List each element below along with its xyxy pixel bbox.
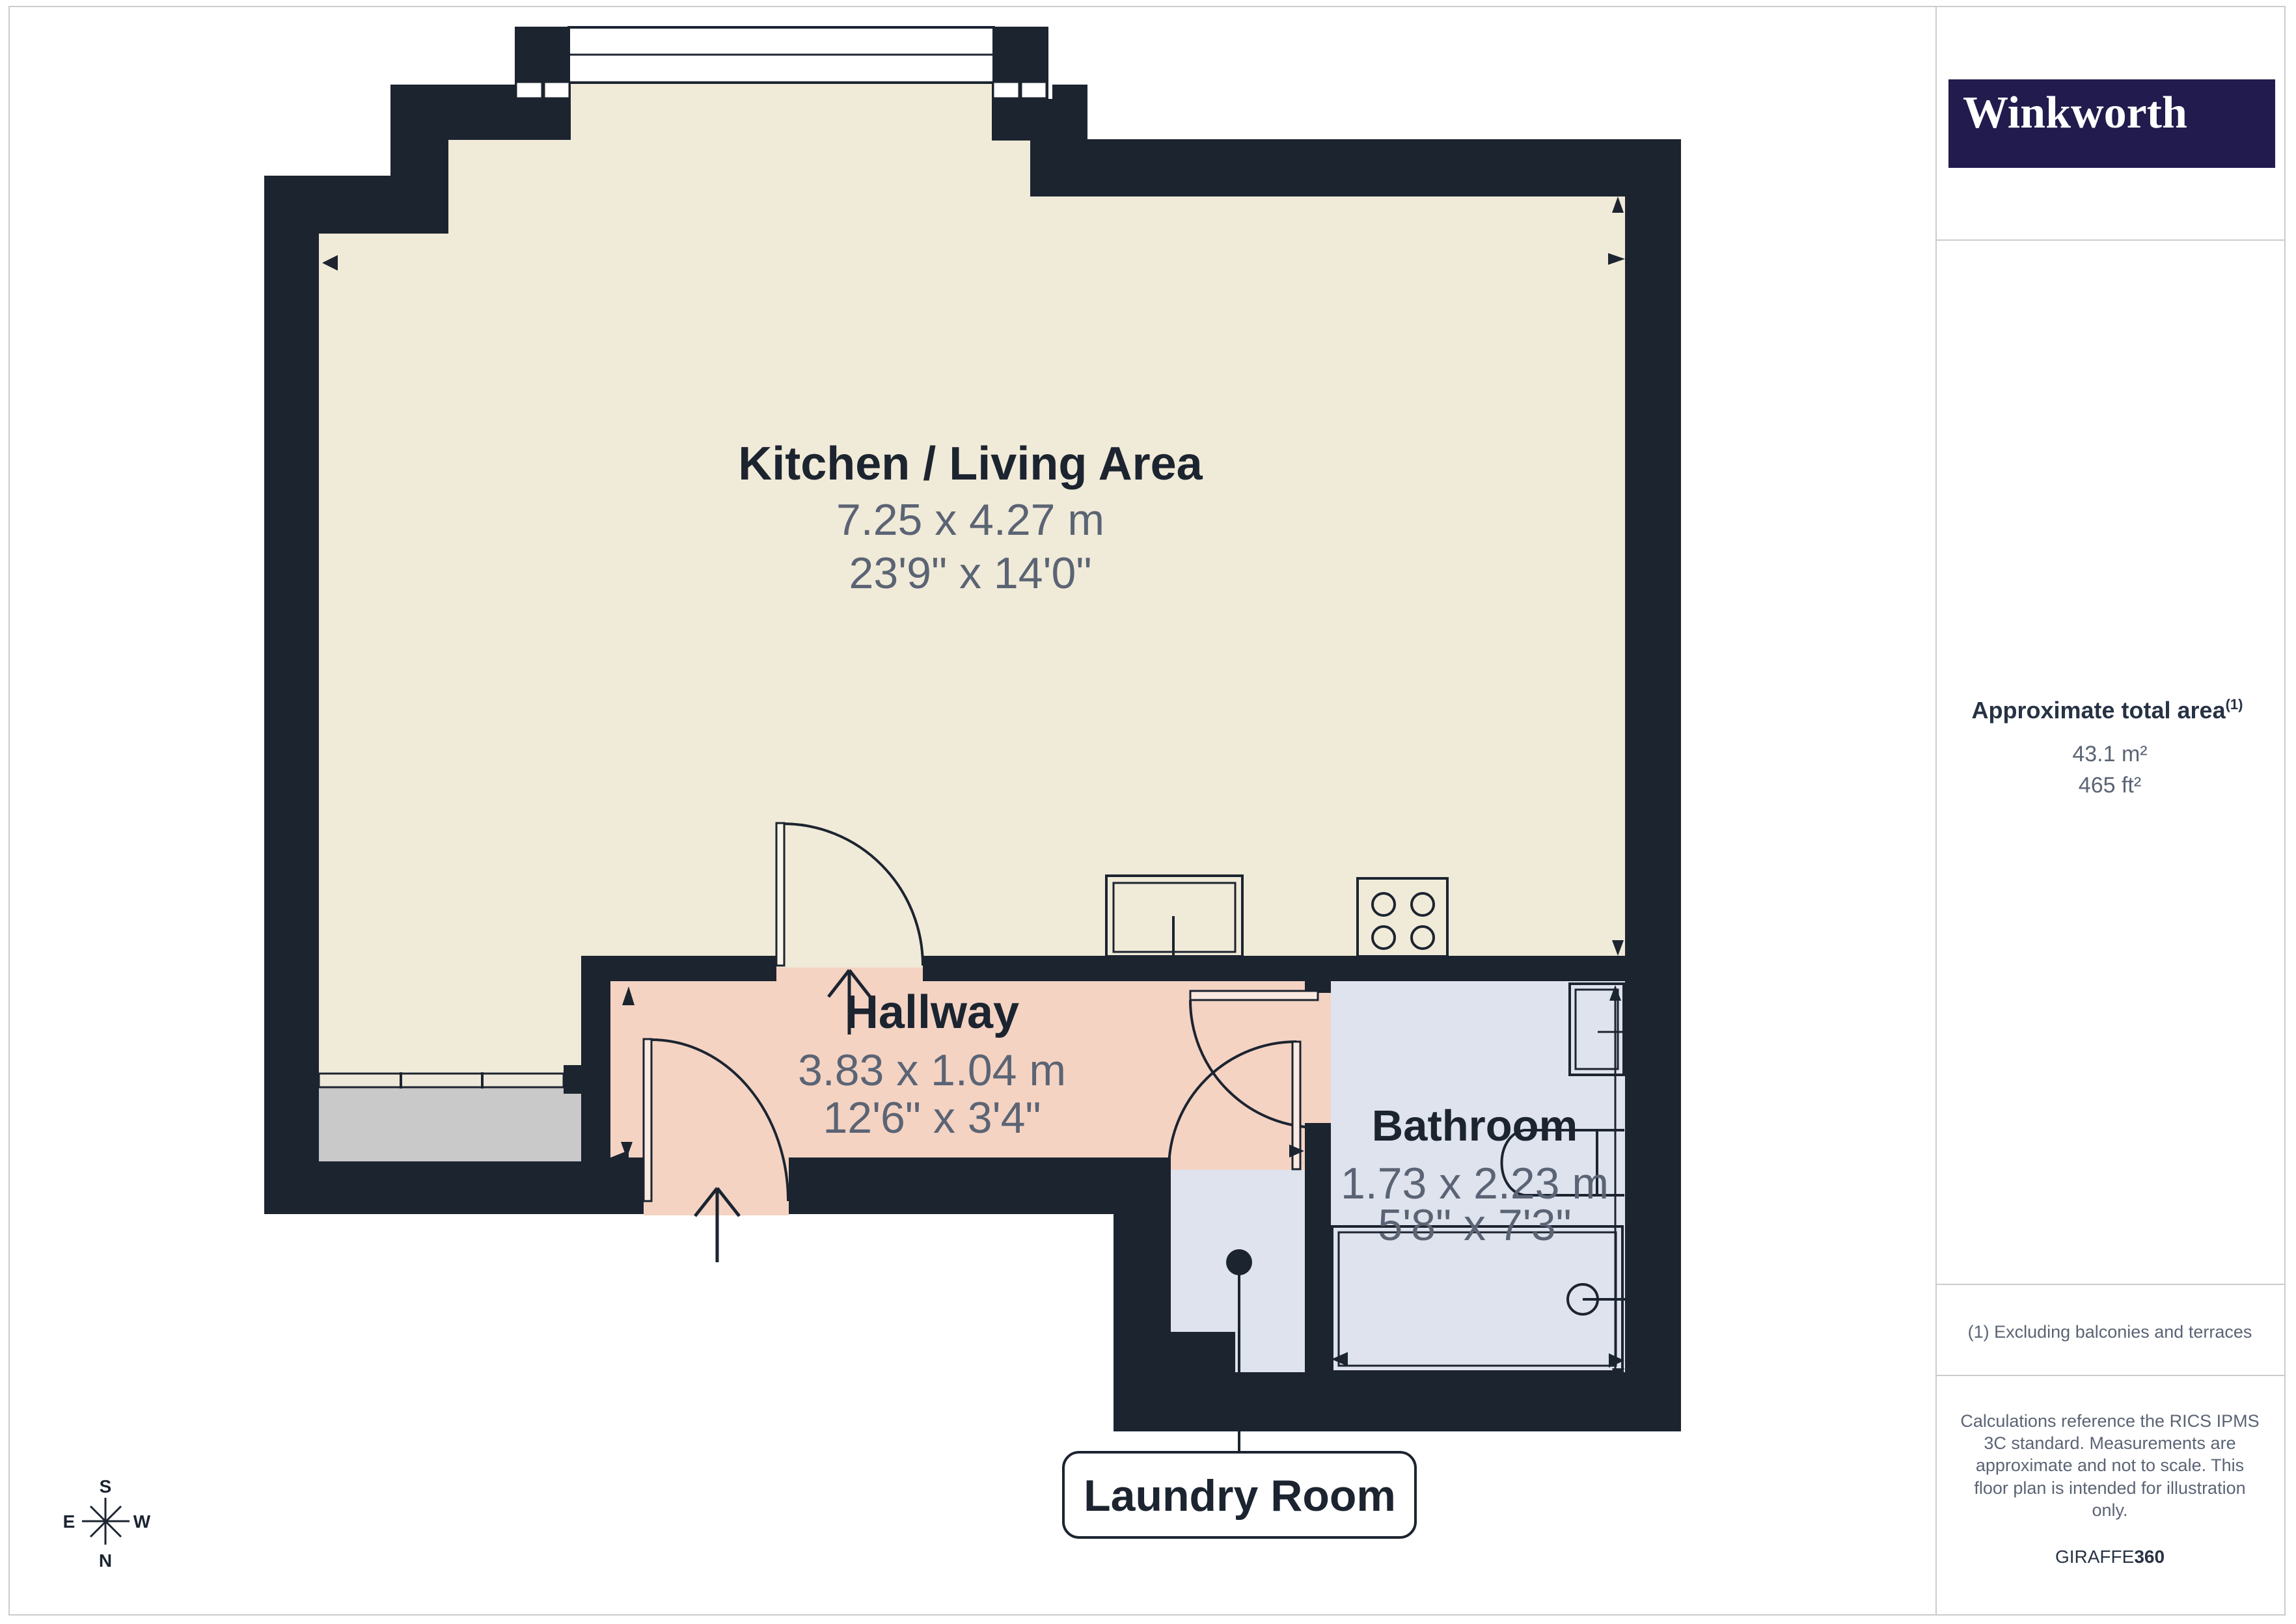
- svg-text:only.: only.: [2092, 1500, 2127, 1520]
- svg-text:approximate and not to scale.: approximate and not to scale. This: [1976, 1455, 2244, 1475]
- svg-text:N: N: [99, 1550, 112, 1571]
- svg-text:43.1 m²: 43.1 m²: [2072, 742, 2147, 766]
- svg-text:(1) Excluding balconies and te: (1) Excluding balconies and terraces: [1968, 1322, 2252, 1342]
- svg-text:S: S: [100, 1476, 112, 1496]
- svg-text:Winkworth: Winkworth: [1963, 88, 2187, 138]
- svg-text:Kitchen / Living Area: Kitchen / Living Area: [738, 438, 1203, 490]
- svg-text:12'6" x 3'4": 12'6" x 3'4": [823, 1093, 1041, 1143]
- svg-text:465 ft²: 465 ft²: [2079, 773, 2141, 798]
- svg-text:GIRAFFE360: GIRAFFE360: [2055, 1547, 2165, 1567]
- svg-text:3.83 x 1.04 m: 3.83 x 1.04 m: [798, 1046, 1066, 1095]
- svg-text:Calculations reference the RIC: Calculations reference the RICS IPMS: [1960, 1411, 2259, 1431]
- svg-text:5'8" x 7'3": 5'8" x 7'3": [1378, 1200, 1571, 1250]
- svg-text:7.25 x 4.27 m: 7.25 x 4.27 m: [836, 495, 1104, 545]
- svg-text:Laundry Room: Laundry Room: [1084, 1471, 1396, 1521]
- svg-text:floor plan is intended for ill: floor plan is intended for illustration: [1974, 1478, 2245, 1498]
- svg-text:W: W: [133, 1511, 151, 1532]
- svg-text:Bathroom: Bathroom: [1372, 1102, 1578, 1150]
- svg-text:Hallway: Hallway: [845, 986, 1019, 1038]
- svg-text:E: E: [63, 1511, 75, 1532]
- svg-text:23'9" x 14'0": 23'9" x 14'0": [849, 548, 1092, 598]
- svg-text:Approximate total area(1): Approximate total area(1): [1971, 696, 2243, 724]
- svg-text:3C standard. Measurements are: 3C standard. Measurements are: [1984, 1433, 2235, 1453]
